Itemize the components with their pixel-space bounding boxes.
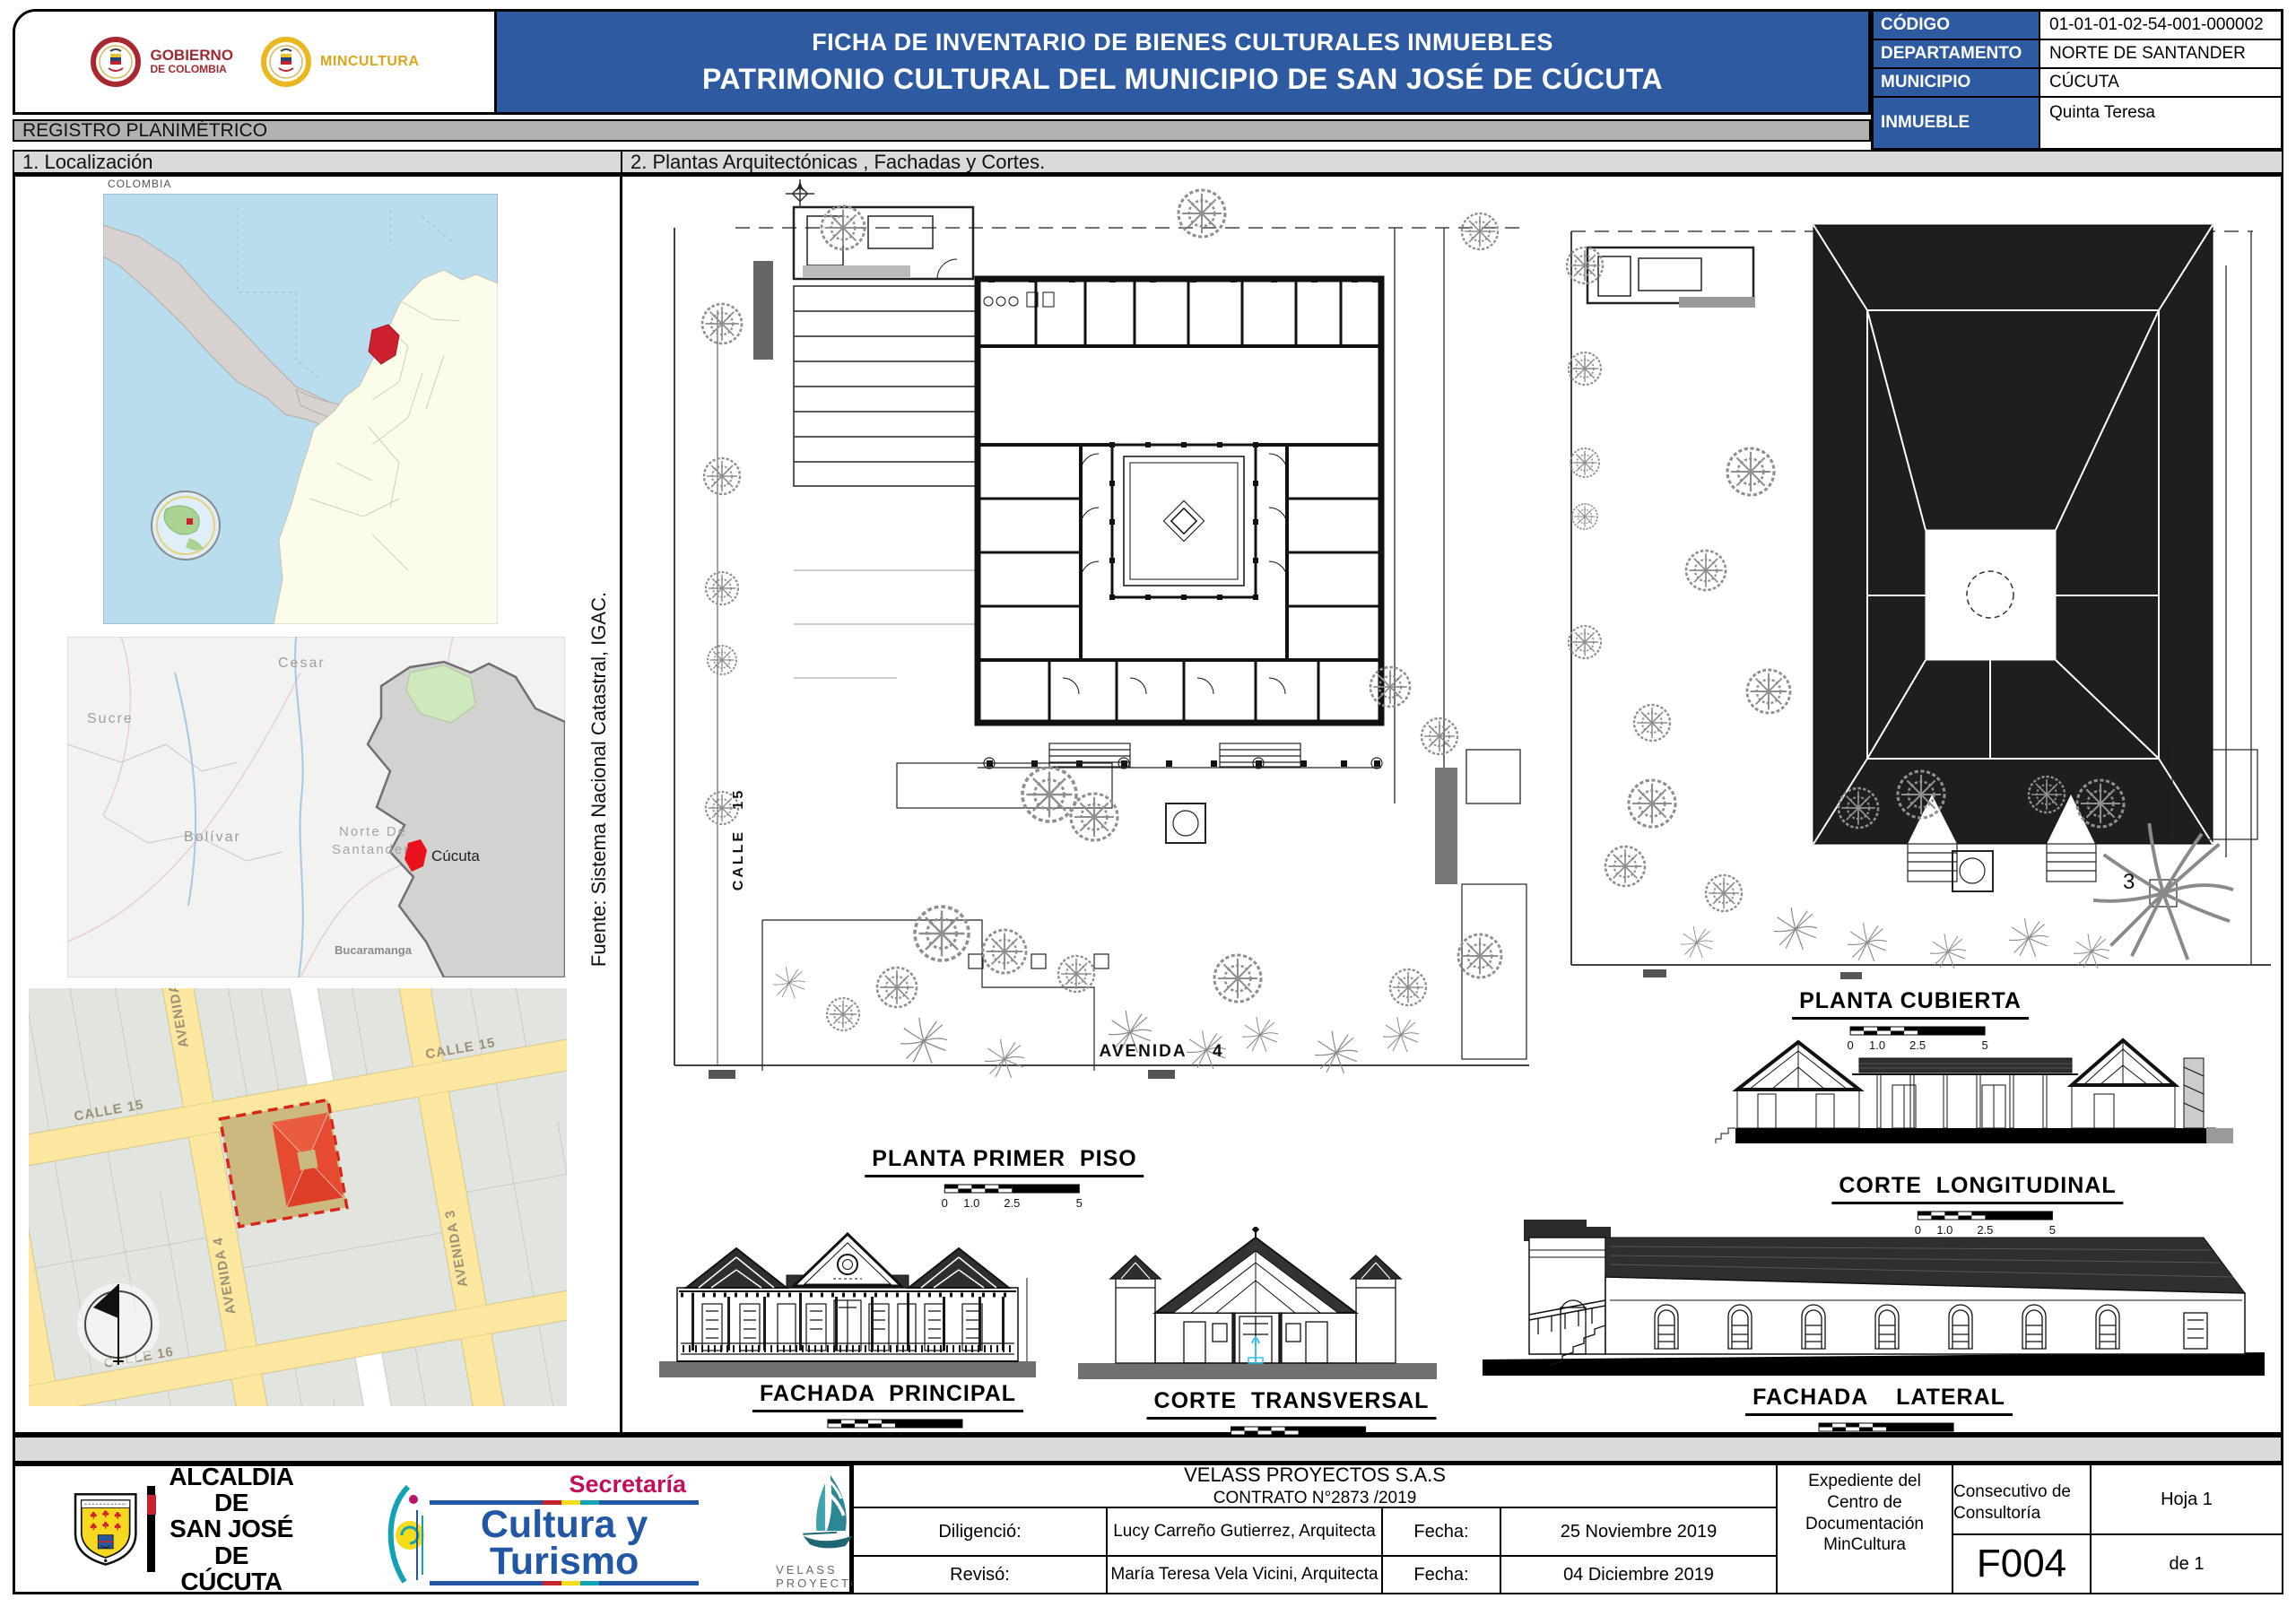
footer-de-cell: de 1: [2090, 1533, 2283, 1594]
alcaldia-logo-text: ALCALDÍA DE SAN JOSÉ DE CÚCUTA: [162, 1464, 300, 1595]
footer-fecha2-label: Fecha:: [1381, 1555, 1501, 1594]
alcaldia-cucuta-logo: ALCALDÍA DE SAN JOSÉ DE CÚCUTA: [71, 1464, 300, 1595]
cubierta-note-3: 3: [2123, 870, 2135, 894]
label-bucaramanga: Bucaramanga: [335, 943, 413, 957]
info-label-codigo: CÓDIGO: [1874, 12, 2040, 40]
secretaria-cultura-turismo-logo: Secretaría Cultura y Turismo: [378, 1471, 699, 1588]
gobierno-colombia-logo: GOBIERNO DE COLOMBIA: [90, 36, 233, 88]
registro-planimetrico-bar: REGISTRO PLANIMÉTRICO: [13, 119, 1871, 142]
label-cucuta: Cúcuta: [431, 847, 480, 864]
scale-bar: 01.0 2.55: [919, 1180, 1090, 1211]
info-label-municipio: MUNICIPIO: [1874, 69, 2040, 98]
mincultura-emblem-icon: [260, 36, 312, 88]
label-norte-de: Norte De: [339, 824, 407, 839]
footer-gray-strip: [13, 1435, 2283, 1464]
fachada-principal-drawing: [657, 1229, 1038, 1383]
footer-consecutivo-label: Consecutivo de Consultoría: [1952, 1464, 2092, 1535]
scale-bar: 01.0 2.55: [1892, 1207, 2063, 1238]
title-corte-longitudinal: CORTE LONGITUDINAL 01.0 2.55: [1831, 1173, 2123, 1238]
logo-stripe-bottom: [430, 1581, 699, 1585]
info-value-inmueble: Quinta Teresa: [2040, 98, 2281, 148]
footer-company-cell: VELASS PROYECTOS S.A.S CONTRATO N°2873 /…: [852, 1464, 1778, 1508]
info-value-departamento: NORTE DE SANTANDER: [2040, 40, 2281, 69]
svg-text:5: 5: [1981, 1038, 1987, 1052]
svg-text:0: 0: [941, 1196, 947, 1210]
footer-diligencio-label: Diligenció:: [852, 1507, 1108, 1557]
info-value-municipio: CÚCUTA: [2040, 69, 2281, 98]
ficha-inventario-sheet: GOBIERNO DE COLOMBIA MINCULTURA FICHA DE…: [0, 0, 2296, 1607]
cultura-y-text: Cultura y: [481, 1507, 648, 1543]
gobierno-emblem-icon: [90, 36, 142, 88]
document-title-line2: PATRIMONIO CULTURAL DEL MUNICIPIO DE SAN…: [702, 63, 1663, 96]
mincultura-logo-text: MINCULTURA: [320, 54, 419, 70]
svg-text:0: 0: [1914, 1223, 1920, 1237]
svg-text:2.5: 2.5: [1004, 1196, 1020, 1210]
title-planta-cubierta: PLANTA CUBIERTA 01.0 2.55: [1792, 988, 2029, 1053]
label-sucre: Sucre: [87, 711, 134, 726]
footer-reviso-name: María Teresa Vela Vicini, Arquitecta: [1106, 1555, 1383, 1594]
label-bolivar: Bolívar: [184, 830, 241, 845]
section-divider-line: [620, 174, 622, 1435]
svg-text:1.0: 1.0: [1869, 1038, 1885, 1052]
section-localizacion-header: 1. Localización: [13, 150, 622, 174]
scale-bar: 01.0 2.55: [1825, 1022, 1996, 1053]
footer-fecha1-value: 25 Noviembre 2019: [1500, 1507, 1778, 1557]
footer-reviso-label: Revisó:: [852, 1555, 1108, 1594]
secretaria-text: Secretaría: [569, 1471, 686, 1498]
svg-text:1.0: 1.0: [963, 1196, 979, 1210]
turismo-text: Turismo: [490, 1543, 639, 1580]
alcaldia-shield-icon: [71, 1484, 140, 1574]
footer-hoja-cell: Hoja 1: [2090, 1464, 2283, 1535]
alcaldia-logo-bar: [147, 1486, 154, 1572]
header-logo-box: GOBIERNO DE COLOMBIA MINCULTURA: [13, 9, 497, 115]
info-label-departamento: DEPARTAMENTO: [1874, 40, 2040, 69]
footer-fecha2-value: 04 Diciembre 2019: [1500, 1555, 1778, 1594]
svg-text:2.5: 2.5: [1909, 1038, 1926, 1052]
colombia-map-caption: COLOMBIA: [108, 178, 493, 190]
norte-de-santander-map: Cesar Sucre Bolívar Norte De Santander C…: [67, 637, 565, 977]
svg-text:5: 5: [1075, 1196, 1082, 1210]
svg-text:0: 0: [1847, 1038, 1853, 1052]
svg-text:1.0: 1.0: [1936, 1223, 1952, 1237]
colombia-map: [103, 194, 498, 624]
svg-text:2.5: 2.5: [1977, 1223, 1993, 1237]
mincultura-logo: MINCULTURA: [260, 36, 419, 88]
planta-cubierta-drawing: 3: [1544, 176, 2282, 983]
title-planta-primer-piso: PLANTA PRIMER PISO 01.0 2.55: [865, 1146, 1144, 1211]
label-cesar: Cesar: [278, 656, 326, 671]
gobierno-logo-text-1: GOBIERNO: [150, 48, 233, 63]
info-label-inmueble: INMUEBLE: [1874, 98, 2040, 148]
footer-fecha1-label: Fecha:: [1381, 1507, 1501, 1557]
plan-label-calle15: CALLE 15: [731, 788, 746, 890]
footer-diligencio-name: Lucy Carreño Gutierrez, Arquitecta: [1106, 1507, 1383, 1557]
gobierno-logo-text-2: DE COLOMBIA: [150, 63, 233, 75]
street-map: CALLE 15 CALLE 15 CALLE 16 AVENIDA 4 AVE…: [29, 988, 567, 1406]
info-value-codigo: 01-01-01-02-54-001-000002: [2040, 12, 2281, 40]
footer-consecutivo-value: F004: [1952, 1533, 2092, 1594]
section-plantas-header: 2. Plantas Arquitectónicas , Fachadas y …: [621, 150, 2283, 174]
corte-transversal-drawing: [1076, 1227, 1439, 1386]
footer-expediente-cell: Expediente del Centro de Documentación M…: [1776, 1464, 1953, 1594]
footer-logos-box: ALCALDÍA DE SAN JOSÉ DE CÚCUTA Secretarí…: [13, 1464, 852, 1594]
planta-primer-piso-drawing: CALLE 15 AVENIDA 4: [628, 176, 1534, 1083]
document-title-band: FICHA DE INVENTARIO DE BIENES CULTURALES…: [497, 9, 1871, 115]
plan-label-avenida4: AVENIDA 4: [1099, 1042, 1223, 1061]
info-table: CÓDIGO 01-01-01-02-54-001-000002 DEPARTA…: [1871, 9, 2283, 151]
fuente-caption: Fuente: Sistema Nacional Catastral, IGAC…: [587, 528, 611, 1030]
label-santander: Santander: [332, 842, 410, 857]
svg-text:5: 5: [2048, 1223, 2055, 1237]
cultura-turismo-icon: [378, 1481, 426, 1587]
north-rose-icon: [786, 179, 814, 208]
document-title-line1: FICHA DE INVENTARIO DE BIENES CULTURALES…: [812, 29, 1553, 56]
